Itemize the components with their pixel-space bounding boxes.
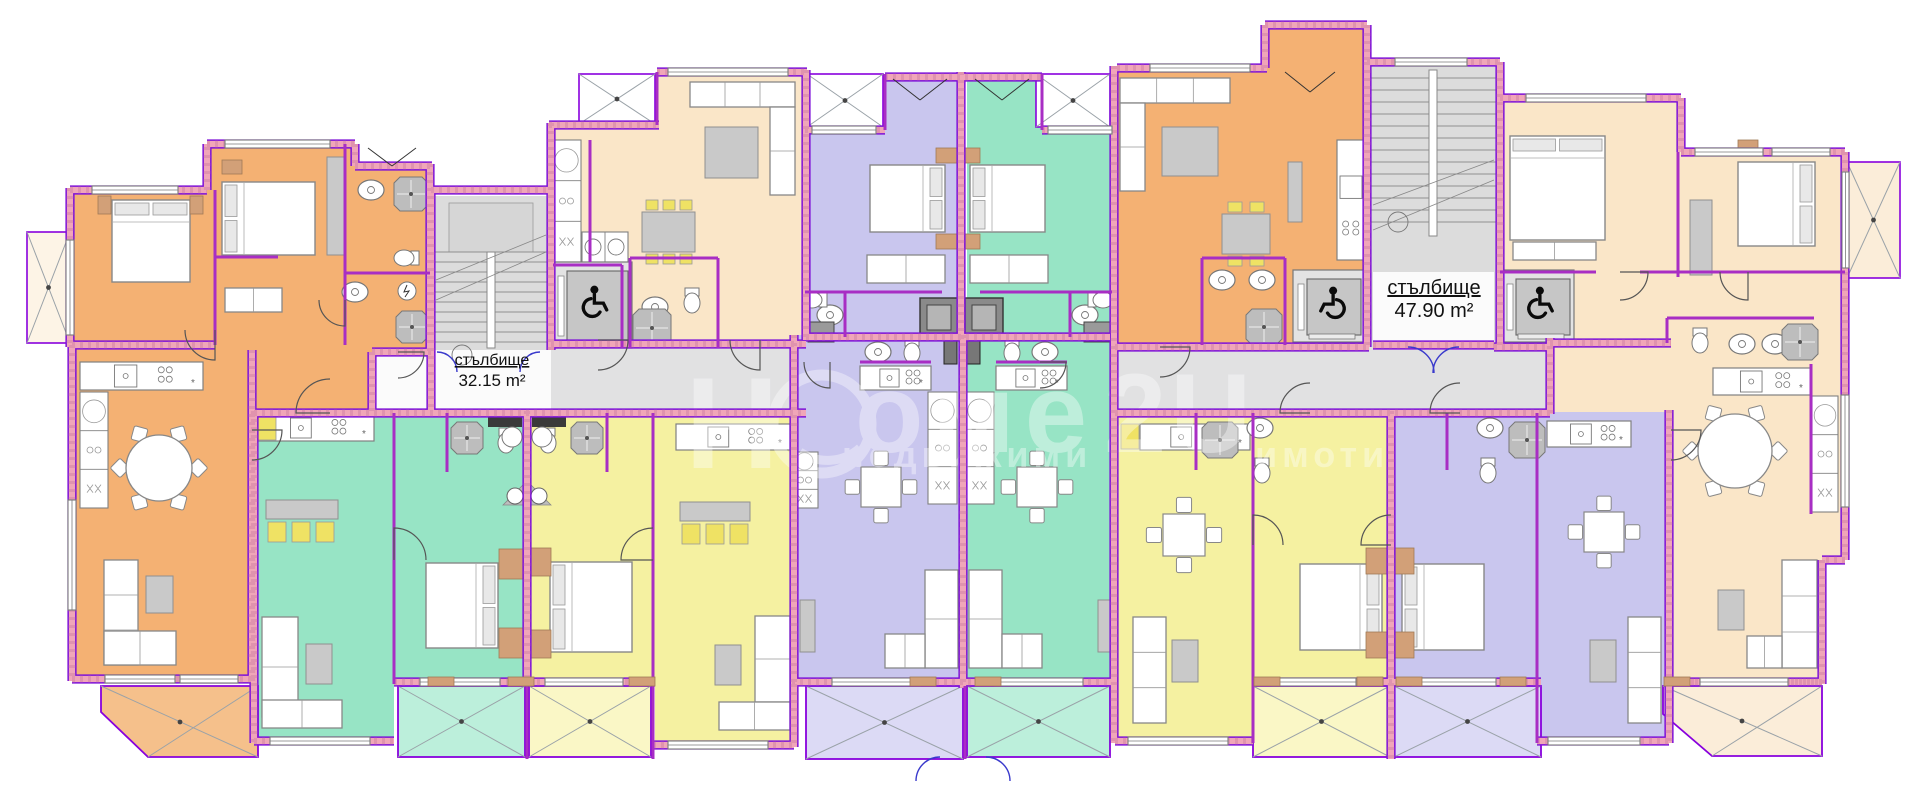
svg-text:*: * xyxy=(191,378,195,389)
svg-text:имоти: имоти xyxy=(1255,434,1389,475)
svg-text:стълбище: стълбище xyxy=(1387,277,1480,299)
svg-text:Н: Н xyxy=(685,350,779,496)
svg-text:32.15 m²: 32.15 m² xyxy=(458,371,525,390)
svg-text:*: * xyxy=(362,429,366,440)
svg-text:*: * xyxy=(1799,383,1803,394)
svg-text:*: * xyxy=(1619,435,1623,446)
svg-text:47.90 m²: 47.90 m² xyxy=(1395,300,1474,322)
svg-text:стълбище: стълбище xyxy=(455,352,530,369)
